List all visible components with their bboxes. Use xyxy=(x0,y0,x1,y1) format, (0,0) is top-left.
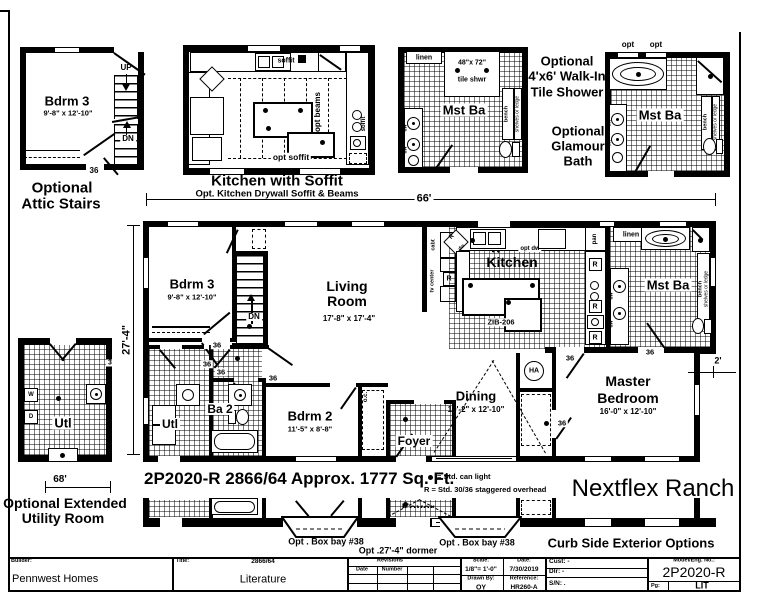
pantry-label: pan xyxy=(592,234,598,245)
room-name: Utl xyxy=(52,417,73,430)
wall xyxy=(552,498,556,518)
closet-dashed xyxy=(521,500,551,515)
can-light-dot xyxy=(544,421,549,426)
door-width-label: 36 xyxy=(211,341,223,349)
room-name: Room xyxy=(327,294,367,308)
inset-caption: Utility Room xyxy=(22,511,104,525)
inset-caption: Kitchen with Soffit xyxy=(211,174,343,189)
page-label: Pg: xyxy=(651,584,660,590)
bench-label: bench xyxy=(703,114,709,130)
wall xyxy=(724,52,730,177)
can-light-dot xyxy=(266,126,271,131)
window xyxy=(55,47,79,53)
drawn-by-label: Drawn By: xyxy=(467,576,494,582)
shelves-label: shelves or ledge xyxy=(705,271,710,307)
inset-caption: Optional xyxy=(32,181,93,196)
can-light-dot xyxy=(468,283,473,288)
box-bay-shape xyxy=(438,516,522,540)
toilet-tank xyxy=(512,142,520,157)
toilet xyxy=(499,141,512,158)
shower-head-dot xyxy=(455,68,460,73)
room-size: 10'-2" x 12'-10" xyxy=(448,406,505,414)
room-name: Mst Ba xyxy=(441,104,488,117)
cooktop-mark xyxy=(298,55,306,63)
wall xyxy=(452,498,456,518)
sink-basin xyxy=(473,232,486,245)
room-name: Living xyxy=(326,279,367,293)
can-light-dot xyxy=(247,324,252,329)
plan-brand-name: Nextflex Ranch xyxy=(572,477,735,501)
box-bay-label: Opt . Box bay #38 xyxy=(439,539,515,548)
washer-label: W xyxy=(28,392,34,398)
room-name: Mst Ba xyxy=(637,109,684,122)
sink xyxy=(408,155,419,166)
linen-label: linen xyxy=(623,232,639,239)
door-swing-line xyxy=(340,387,356,409)
range xyxy=(538,229,566,249)
roof-line xyxy=(295,500,309,516)
customer-field: Cust: - xyxy=(549,559,570,566)
closet-oc-label: o.c. xyxy=(363,392,369,402)
window xyxy=(352,221,384,227)
front-door-opening xyxy=(396,456,426,462)
room-name: Mst Ba xyxy=(645,279,692,292)
dimension-tick xyxy=(127,225,140,226)
closet-rod-dashed xyxy=(152,332,210,333)
door-width-label: 36 xyxy=(556,419,568,427)
wall xyxy=(262,378,266,456)
cabinet-label: cabt xyxy=(431,239,437,250)
arrow-down-icon xyxy=(122,84,130,91)
soffit-side-label: soffit xyxy=(361,117,367,132)
dormer-label: Opt .27'-4" dormer xyxy=(359,547,437,556)
can-light-dot xyxy=(263,108,268,113)
opt-beams-label: opt beams xyxy=(314,92,322,132)
wall xyxy=(264,255,268,347)
room-name: Bdrm 3 xyxy=(170,278,215,291)
dimension-tick xyxy=(713,366,714,378)
window xyxy=(340,45,360,52)
tile-floor xyxy=(149,500,209,517)
room-name: Bedroom xyxy=(597,391,658,405)
can-light-dot xyxy=(298,108,303,113)
inset-caption: Bath xyxy=(564,155,593,168)
tv-center-label: tv center xyxy=(430,270,436,293)
dimension-label-width: 66' xyxy=(415,194,434,205)
room-size: 11'-5" x 8'-8" xyxy=(288,425,332,433)
room-name: Foyer xyxy=(396,435,433,447)
title-block-divider xyxy=(172,557,174,592)
can-light-dot xyxy=(530,283,535,288)
inset-caption: Tile Shower xyxy=(531,86,604,99)
inset-caption: Attic Stairs xyxy=(21,197,100,212)
sheet-border-tick xyxy=(0,10,9,12)
title-block-divider xyxy=(647,557,649,592)
drain-dot xyxy=(412,143,415,146)
drain-dot xyxy=(95,393,98,396)
dimension-label-depth: 27'-4" xyxy=(122,323,133,357)
door-width-label: 36 xyxy=(644,348,656,356)
window xyxy=(285,221,317,227)
slider-mid-line xyxy=(436,458,512,459)
inset-caption: Optional xyxy=(541,55,594,68)
title-number: 2866/64 xyxy=(251,559,275,566)
bench-label: bench xyxy=(504,106,510,122)
toilet-tank xyxy=(704,319,712,334)
room-size: 9'-8" x 12'-10" xyxy=(43,109,92,117)
reference-label: Reference: xyxy=(510,576,538,582)
door-width-label: 3 xyxy=(106,360,114,367)
room-size: 17'-8" x 17'-4" xyxy=(323,315,375,323)
tile-shower xyxy=(444,51,500,97)
door-width-label: 36 xyxy=(267,374,279,382)
door-opening xyxy=(330,383,356,387)
overhead-label: R xyxy=(592,304,597,311)
window xyxy=(585,456,611,462)
window xyxy=(168,221,198,227)
dimension-line xyxy=(133,225,134,455)
model-spec-text: 2P2020-R 2866/64 Approx. 1777 Sq. Ft. xyxy=(144,470,454,487)
can-light-dot xyxy=(506,300,511,305)
wall xyxy=(552,353,556,456)
can-light-dot xyxy=(403,417,408,422)
title-block-row-line xyxy=(347,574,460,575)
drawn-by-value: OY xyxy=(476,585,486,592)
sink-basin xyxy=(488,232,501,245)
roof-line xyxy=(331,500,345,516)
drain-dot xyxy=(412,122,415,125)
reference-value: HR260-A xyxy=(510,585,537,592)
tub-drain-dot xyxy=(636,72,641,77)
wall xyxy=(20,47,26,170)
wall xyxy=(516,498,520,518)
room-name: Dining xyxy=(456,390,496,403)
tub-basin xyxy=(214,433,255,450)
arrow-stem xyxy=(126,74,127,83)
can-light-dot xyxy=(60,453,65,458)
curb-options-caption: Curb Side Exterior Options xyxy=(548,537,715,550)
wall xyxy=(522,47,528,173)
closet-shelf-line xyxy=(152,326,210,328)
shower-label: tile shwr xyxy=(458,77,486,84)
room-name: Bdrm 3 xyxy=(45,95,90,108)
door-width-label: 36 xyxy=(215,368,227,376)
wall xyxy=(262,498,266,518)
door-opening xyxy=(450,167,478,173)
legend-overhead-text: R = Std. 30/36 staggered overhead xyxy=(424,486,546,494)
toilet xyxy=(703,138,716,155)
title-block-row-line xyxy=(545,577,647,578)
scale-label: Scale: xyxy=(473,558,489,564)
can-light-dot xyxy=(470,238,475,243)
soffit-dashed-line xyxy=(240,78,241,158)
revisions-header: Revisions xyxy=(377,558,403,564)
shower-drain-dot xyxy=(698,238,703,243)
toilet xyxy=(236,409,249,425)
wall xyxy=(20,164,144,170)
door-opening xyxy=(50,338,76,345)
oven-dial xyxy=(353,139,361,147)
title-block-row-line xyxy=(347,583,460,584)
legend-can-light-text: = Std. can light xyxy=(437,473,491,481)
sink xyxy=(612,152,623,163)
drawer-label: dw xyxy=(404,147,409,154)
builder-label: Builder: xyxy=(11,559,32,565)
overhead-label: R xyxy=(592,262,597,269)
cabinet xyxy=(192,137,222,161)
opt-soffit-label: opt soffit xyxy=(271,153,311,162)
tub-drain-dot xyxy=(663,237,668,242)
burner-icon xyxy=(590,281,599,290)
door-opening xyxy=(556,347,584,353)
stairs-down-label: DN xyxy=(246,313,262,321)
wall xyxy=(516,388,556,392)
oven-dial xyxy=(591,318,599,326)
wall xyxy=(422,227,427,312)
room-size: 16'-0" x 12'-10" xyxy=(600,408,657,416)
room-name: Ba 2 xyxy=(205,403,234,415)
shower-head-dot xyxy=(484,68,489,73)
title-block-divider xyxy=(407,566,408,592)
wall xyxy=(358,498,362,518)
door-opening xyxy=(396,518,430,527)
tub-basin xyxy=(214,501,255,513)
shelves-label: shelves or ledge xyxy=(714,104,719,140)
legend-can-light-dot xyxy=(428,475,433,480)
soffit-dashed-line xyxy=(228,78,352,79)
dealer-field: Dlr: - xyxy=(549,569,564,576)
sink xyxy=(182,389,194,401)
drawing-sheet: UP DN Bdrm 3 9'-8" x 12'-10" 36 Optional… xyxy=(0,0,777,600)
linen-label: linen xyxy=(416,55,432,62)
drain-dot xyxy=(616,138,619,141)
room-name: Bdrm 2 xyxy=(288,410,333,423)
window xyxy=(143,258,149,288)
title-block-row-line xyxy=(647,581,741,582)
dimension-tick xyxy=(45,481,46,493)
door-width-label: 36 xyxy=(88,167,101,175)
door-opening xyxy=(160,518,182,527)
window xyxy=(296,456,336,462)
wall xyxy=(106,338,112,462)
drain-dot xyxy=(616,118,619,121)
can-light-dot xyxy=(56,396,61,401)
opt-label: opt xyxy=(622,41,634,49)
window xyxy=(694,385,700,415)
shower-size-label: 48"x 72" xyxy=(458,60,486,67)
box-bay-label: Opt . Box bay #38 xyxy=(288,538,364,547)
dimension-label-offset: 2' xyxy=(712,357,723,366)
overhead-label: R xyxy=(592,335,597,342)
arrow-up-icon xyxy=(123,121,131,128)
title-block-divider xyxy=(545,557,547,592)
can-light-dot xyxy=(235,356,240,361)
dimension-tick xyxy=(715,193,716,206)
scale-value: 1/8"= 1'-0" xyxy=(465,567,497,574)
room-name: Utl xyxy=(160,418,180,430)
can-light-dot xyxy=(320,140,325,145)
drawer-label: dw xyxy=(404,125,409,132)
stairs-down-label: DN xyxy=(120,135,136,143)
drain-dot xyxy=(618,285,621,288)
door-width-label: 36 xyxy=(564,354,576,362)
toilet xyxy=(692,318,704,334)
model-number-label: Model/Eng. No.: xyxy=(673,558,715,564)
title-block-divider xyxy=(668,581,669,592)
stairs-up-label: UP xyxy=(120,64,131,72)
refrigerator xyxy=(190,97,224,135)
inset-caption: Optional xyxy=(552,125,605,138)
window xyxy=(248,45,280,52)
drain-dot xyxy=(239,394,242,397)
closet-dashed xyxy=(252,229,266,249)
room-size: 9'-8" x 12'-10" xyxy=(167,293,216,301)
toilet-tank xyxy=(716,139,723,154)
title-block-divider xyxy=(377,566,378,592)
hall-diagonal xyxy=(268,347,293,365)
drawer-label: dw xyxy=(608,140,613,147)
page-value: LIT xyxy=(695,582,709,591)
inset-caption: Glamour xyxy=(551,140,604,153)
dimension-tick xyxy=(146,193,147,206)
dimension-label: 68' xyxy=(51,475,69,485)
shelves-label: shelves or ledge xyxy=(516,96,521,132)
wall xyxy=(262,383,388,387)
window xyxy=(645,518,679,527)
inset-subcaption: Opt. Kitchen Drywall Soffit & Beams xyxy=(195,189,358,199)
shower-drain-dot xyxy=(708,74,713,79)
dimension-tick xyxy=(110,481,111,493)
tile-floor xyxy=(390,404,452,456)
title-block-divider xyxy=(433,566,434,592)
arrow-up-icon xyxy=(247,294,255,301)
serial-field: S/N: . xyxy=(549,581,566,588)
model-number-value: 2P2020-R xyxy=(662,565,725,579)
closet-rod-dashed xyxy=(24,157,80,158)
builder-value: Pennwest Homes xyxy=(12,574,98,585)
window xyxy=(710,258,716,286)
dimension-tick xyxy=(127,454,140,455)
room-name: Master xyxy=(605,374,650,388)
island-model-label: ZIB-206 xyxy=(485,318,516,326)
closet-shelf-line xyxy=(24,150,80,151)
inset-caption: 4'x6' Walk-In xyxy=(528,70,605,83)
door-width-label: 36 xyxy=(201,360,213,368)
door-swing-line xyxy=(83,133,115,156)
dryer-label: D xyxy=(29,414,33,420)
date-value: 7/30/2019 xyxy=(510,567,539,574)
title-label: Title: xyxy=(176,559,189,565)
window xyxy=(585,518,611,527)
door-opening xyxy=(648,171,674,177)
drain-dot xyxy=(618,312,621,315)
tile-floor xyxy=(213,349,262,382)
sink-basin xyxy=(258,56,270,68)
dimension-line xyxy=(45,487,111,488)
drawer-label: dw xyxy=(608,120,613,127)
dashed-cabinet xyxy=(349,153,367,164)
sheet-border-right xyxy=(739,32,741,557)
drawer-label: dw xyxy=(610,321,615,328)
opt-label: opt xyxy=(650,41,662,49)
room-name: Kitchen xyxy=(486,255,537,269)
door-swing-line xyxy=(203,312,230,335)
revisions-number-col: Number xyxy=(382,567,403,573)
furnace-label: HA xyxy=(529,368,539,375)
door-opening xyxy=(158,456,180,462)
inset-caption: Optional Extended xyxy=(3,496,127,510)
window xyxy=(645,456,679,462)
title-name: Literature xyxy=(240,575,286,586)
drawer-label: dw xyxy=(610,293,615,300)
soffit-label: soffit xyxy=(277,58,294,65)
patio-slider xyxy=(432,456,516,462)
revisions-date-col: Date xyxy=(356,567,368,573)
date-label: Date: xyxy=(517,558,531,564)
